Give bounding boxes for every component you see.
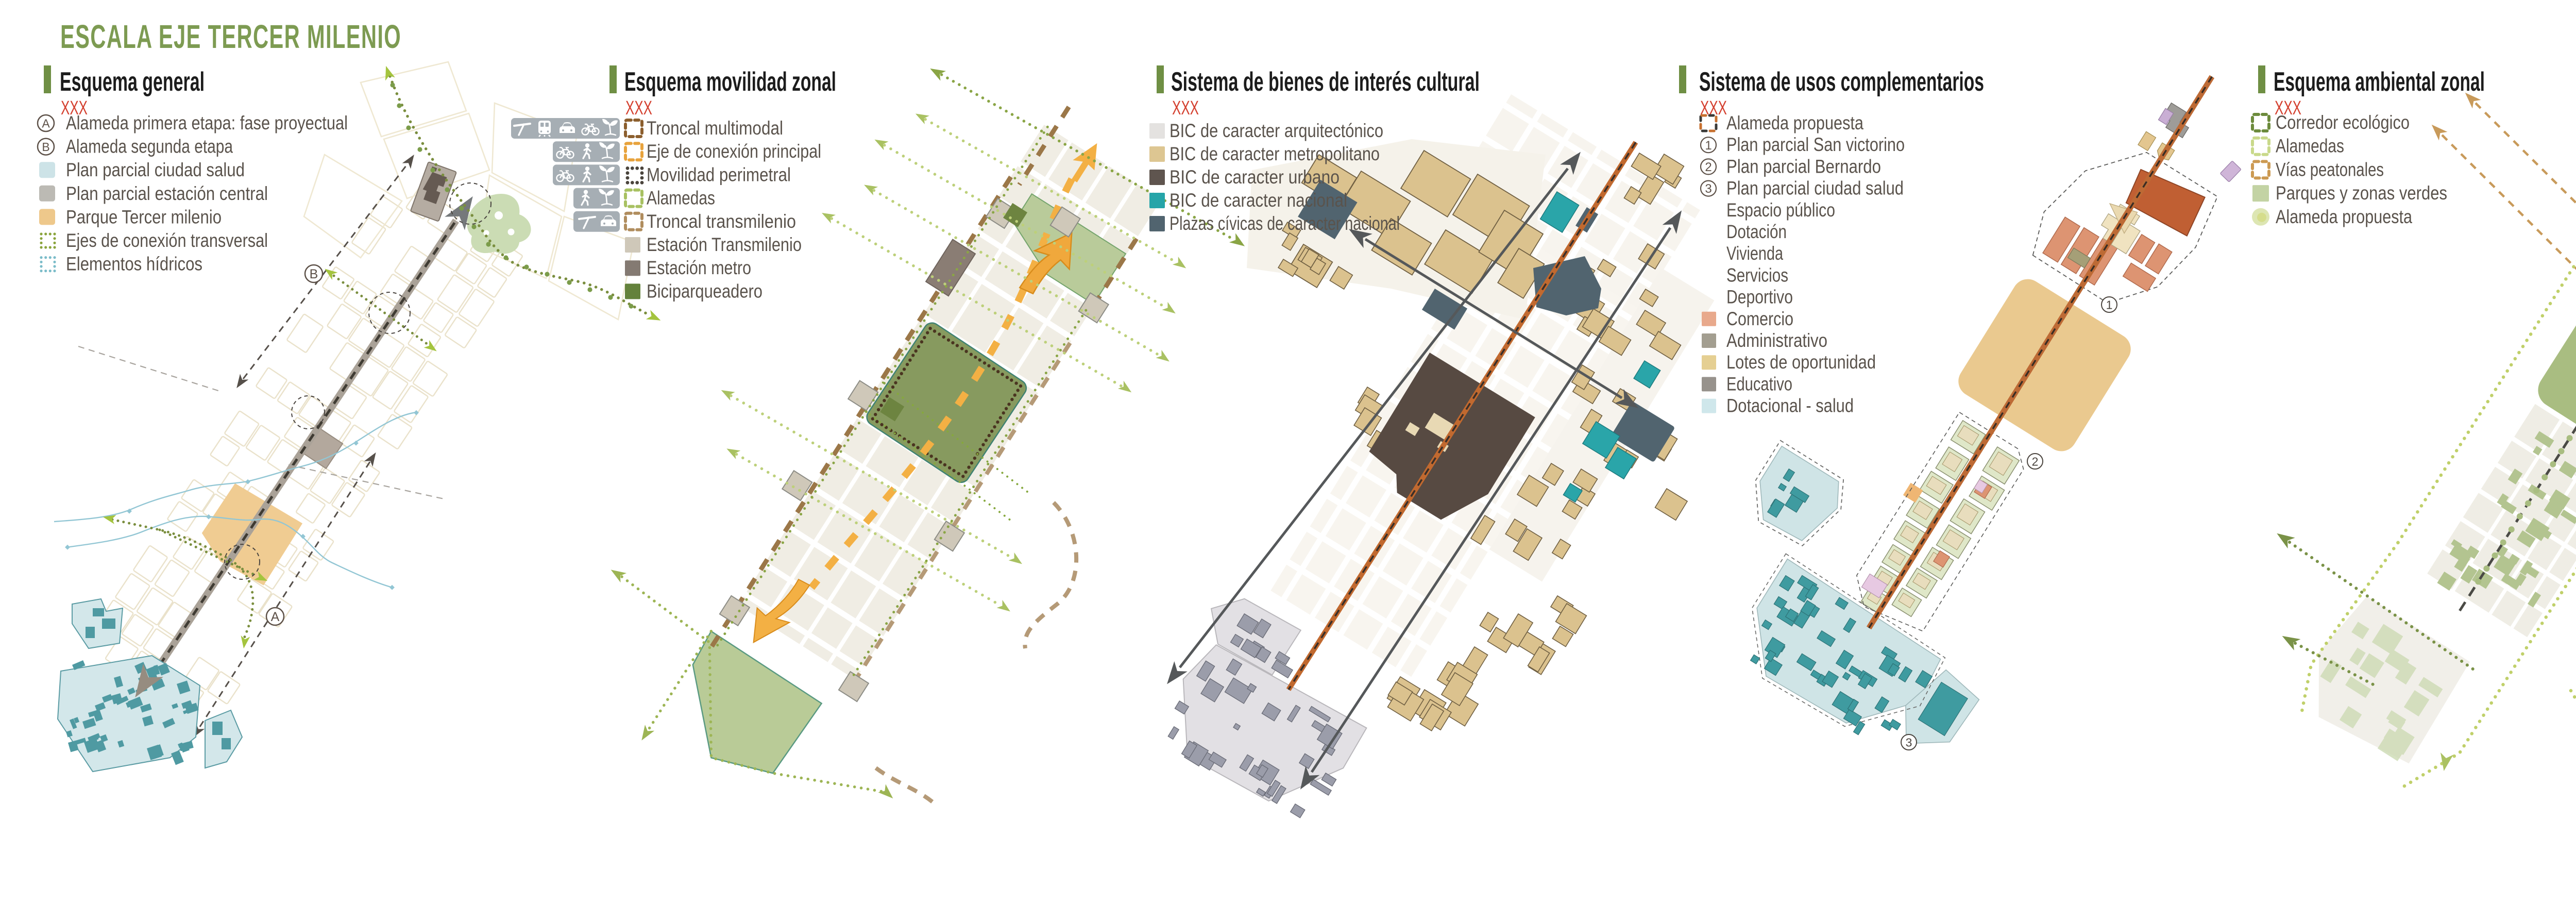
svg-text:XXX: XXX <box>625 97 652 119</box>
svg-text:Ejes de conexión transversal: Ejes de conexión transversal <box>66 230 268 251</box>
svg-text:Plan parcial estación central: Plan parcial estación central <box>66 183 268 204</box>
svg-text:Dotacional - salud: Dotacional - salud <box>1726 395 1854 416</box>
svg-text:Troncal multimodal: Troncal multimodal <box>647 118 783 139</box>
svg-text:Espacio público: Espacio público <box>1726 199 1835 221</box>
svg-text:Deportivo: Deportivo <box>1726 287 1793 308</box>
svg-text:BIC de caracter arquitectónico: BIC de caracter arquitectónico <box>1170 120 1383 141</box>
svg-text:Movilidad perimetral: Movilidad perimetral <box>647 164 791 185</box>
svg-text:Parque Tercer milenio: Parque Tercer milenio <box>66 206 222 227</box>
svg-text:Plan parcial Bernardo: Plan parcial Bernardo <box>1726 156 1881 177</box>
svg-text:Vías peatonales: Vías peatonales <box>2276 159 2384 180</box>
svg-text:Corredor ecológico: Corredor ecológico <box>2276 112 2410 133</box>
svg-text:Alamedas: Alamedas <box>2276 136 2344 157</box>
svg-text:3: 3 <box>1906 735 1912 749</box>
svg-text:Educativo: Educativo <box>1726 373 1792 394</box>
svg-text:A: A <box>42 116 50 130</box>
svg-text:BIC de caracter urbano: BIC de caracter urbano <box>1170 166 1340 188</box>
svg-text:Biciparqueadero: Biciparqueadero <box>647 280 762 302</box>
svg-text:Troncal transmilenio: Troncal transmilenio <box>647 211 796 232</box>
svg-text:Sistema de usos complementario: Sistema de usos complementarios <box>1699 67 1984 97</box>
svg-text:Eje de conexión principal: Eje de conexión principal <box>647 141 821 162</box>
svg-text:Estación metro: Estación metro <box>647 257 751 278</box>
svg-text:3: 3 <box>1705 182 1711 196</box>
svg-text:Administrativo: Administrativo <box>1726 330 1827 351</box>
svg-text:XXX: XXX <box>1172 97 1199 119</box>
svg-text:Esquema general: Esquema general <box>60 67 205 97</box>
svg-text:Alameda propuesta: Alameda propuesta <box>2276 206 2412 227</box>
svg-text:BIC de caracter metropolitano: BIC de caracter metropolitano <box>1170 143 1380 164</box>
svg-text:Plazas cívicas de caracter nac: Plazas cívicas de caracter nacional <box>1170 213 1400 234</box>
svg-text:Vivienda: Vivienda <box>1726 243 1783 264</box>
svg-text:B: B <box>42 140 49 154</box>
svg-text:BIC de caracter nacional: BIC de caracter nacional <box>1170 190 1347 211</box>
svg-text:Plan parcial ciudad salud: Plan parcial ciudad salud <box>1726 178 1904 199</box>
svg-text:ESCALA EJE TERCER MILENIO: ESCALA EJE TERCER MILENIO <box>60 18 401 55</box>
svg-text:Dotación: Dotación <box>1726 221 1787 242</box>
svg-text:Esquema movilidad zonal: Esquema movilidad zonal <box>624 67 836 97</box>
svg-text:Parques y zonas verdes: Parques y zonas verdes <box>2276 182 2447 204</box>
svg-text:Sistema de bienes de interés c: Sistema de bienes de interés cultural <box>1171 67 1480 97</box>
svg-text:B: B <box>310 267 318 281</box>
svg-text:Alameda propuesta: Alameda propuesta <box>1726 112 1863 133</box>
svg-text:Comercio: Comercio <box>1726 308 1793 329</box>
svg-text:Alamedas: Alamedas <box>647 188 715 209</box>
svg-text:Plan parcial San victorino: Plan parcial San victorino <box>1726 134 1905 155</box>
svg-text:Servicios: Servicios <box>1726 264 1788 286</box>
svg-text:Alameda segunda etapa: Alameda segunda etapa <box>66 136 233 157</box>
svg-text:Plan parcial ciudad salud: Plan parcial ciudad salud <box>66 159 245 180</box>
svg-text:Esquema ambiental zonal: Esquema ambiental zonal <box>2274 67 2485 97</box>
svg-text:1: 1 <box>1705 139 1711 153</box>
svg-text:A: A <box>271 610 280 624</box>
svg-text:Alameda primera etapa: fase pr: Alameda primera etapa: fase proyectual <box>66 112 348 133</box>
svg-text:1: 1 <box>2106 298 2113 311</box>
svg-text:Estación Transmilenio: Estación Transmilenio <box>647 234 802 255</box>
svg-text:2: 2 <box>2032 455 2039 468</box>
svg-text:Lotes de oportunidad: Lotes de oportunidad <box>1726 352 1876 373</box>
svg-text:2: 2 <box>1705 160 1711 174</box>
svg-text:Elementos hídricos: Elementos hídricos <box>66 254 202 275</box>
